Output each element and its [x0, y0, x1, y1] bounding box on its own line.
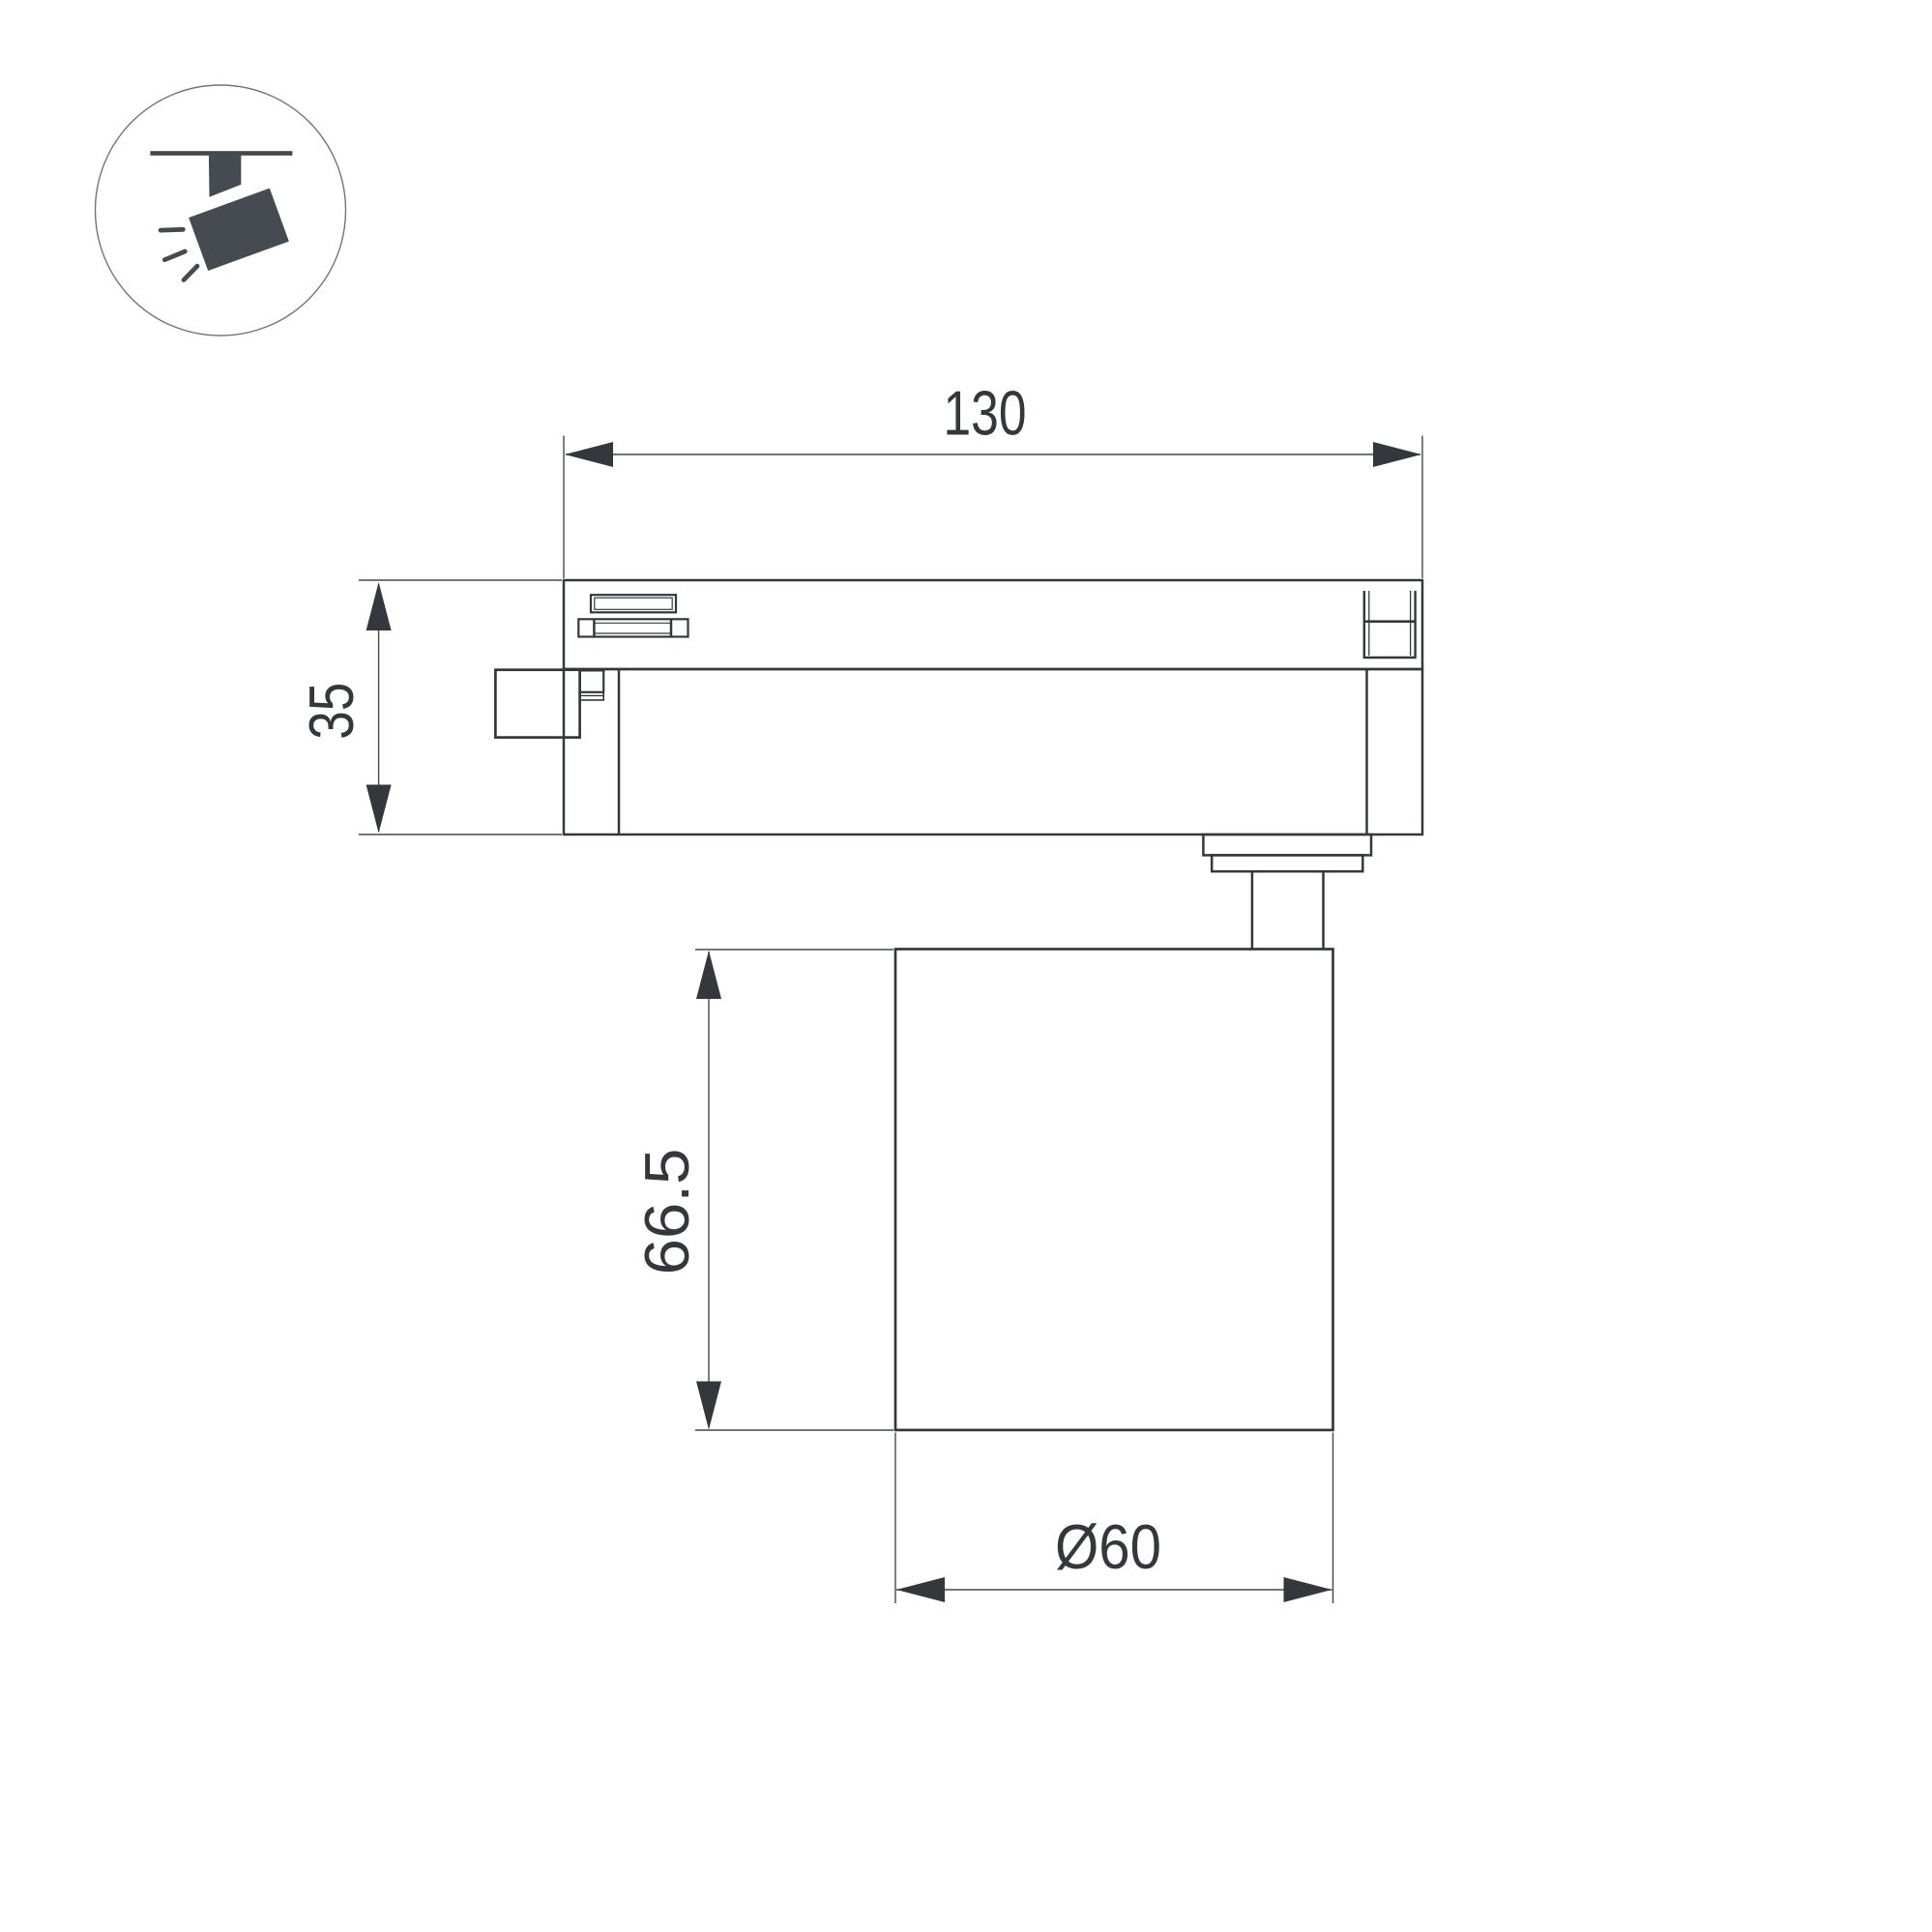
svg-text:66.5: 66.5: [631, 1149, 702, 1275]
svg-text:35: 35: [296, 683, 366, 740]
svg-text:130: 130: [944, 378, 1027, 449]
svg-text:Ø60: Ø60: [1055, 1511, 1161, 1582]
